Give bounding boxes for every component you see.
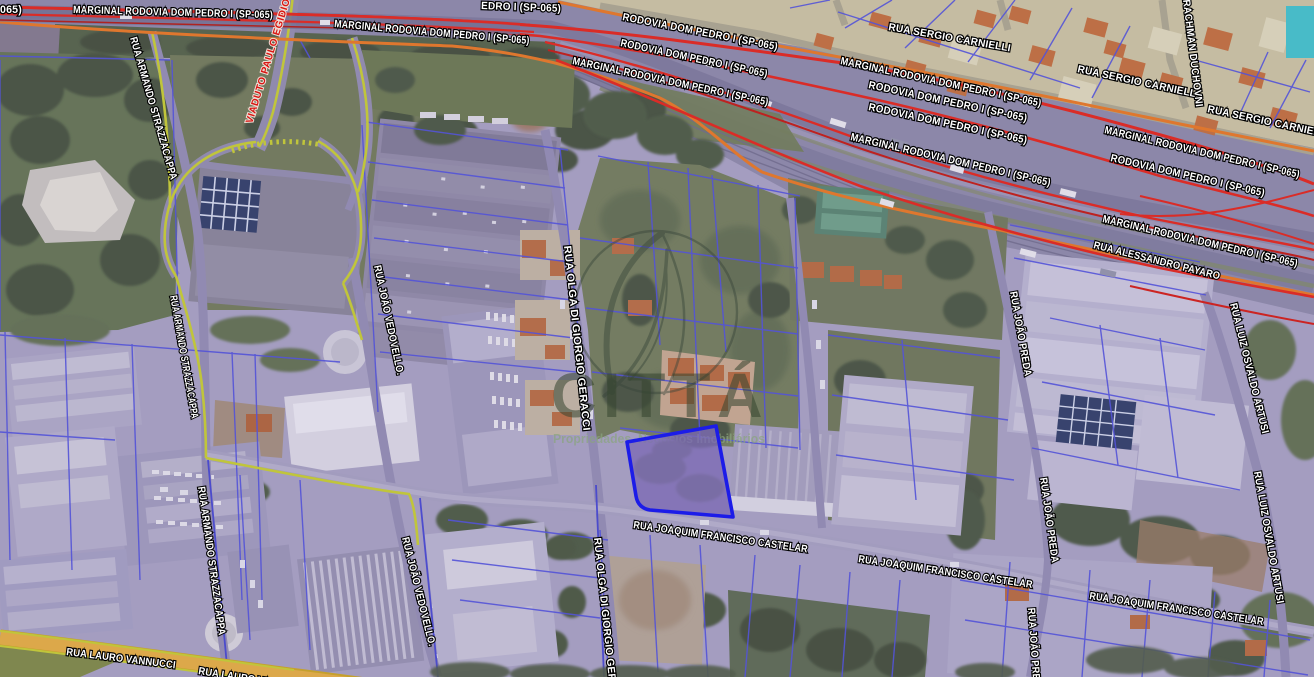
svg-text:065): 065): [0, 4, 22, 16]
